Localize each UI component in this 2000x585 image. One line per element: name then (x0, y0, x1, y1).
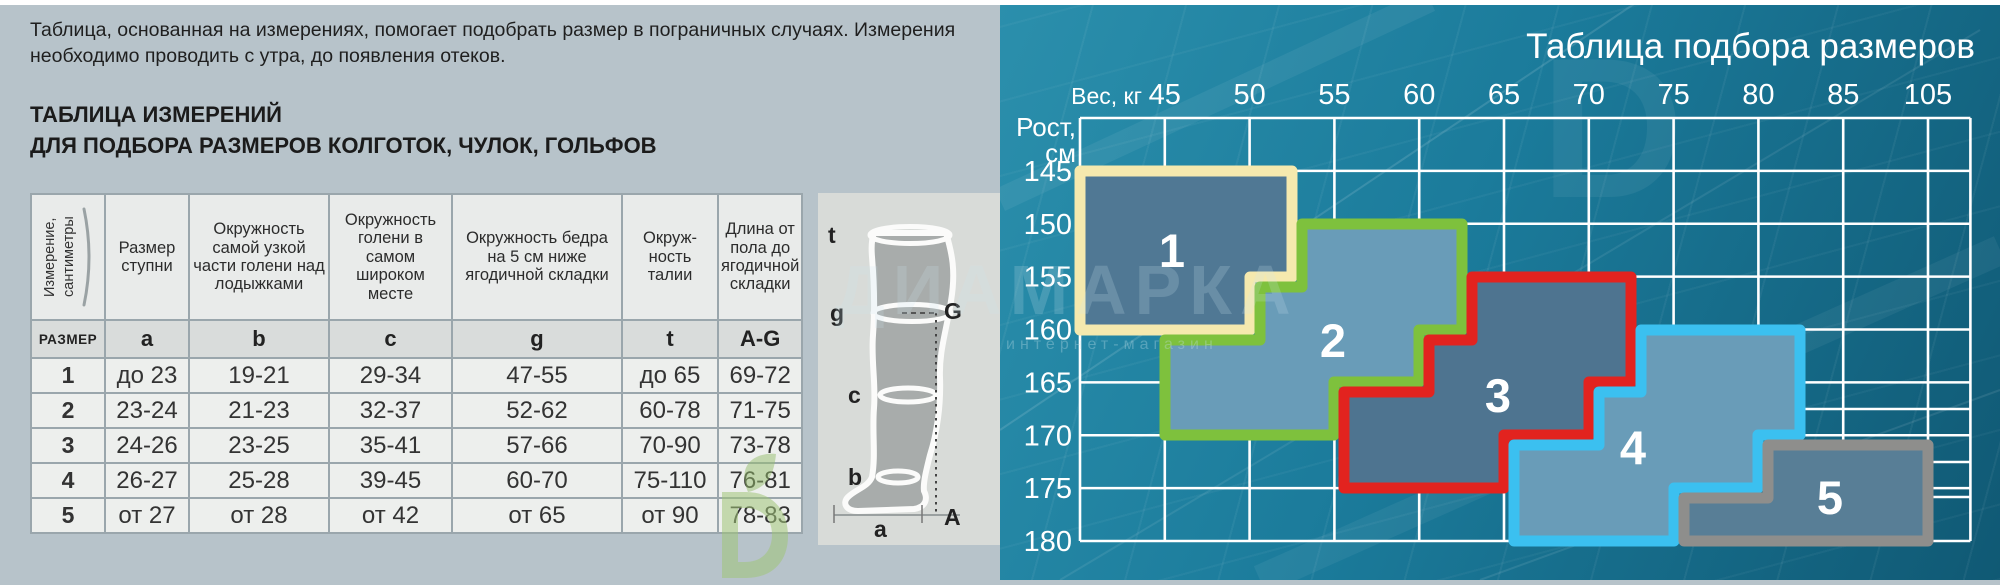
height-tick: 160 (1024, 315, 1072, 347)
cell: 5 (32, 499, 104, 532)
cell: 60-78 (623, 394, 717, 427)
weight-tick: 50 (1233, 79, 1265, 111)
cell: 78-83 (719, 499, 801, 532)
size-selection-panel: 1234545505560657075808510514515015516016… (1000, 0, 2000, 580)
cell: 24-26 (106, 429, 188, 462)
table-heading: ТАБЛИЦА ИЗМЕРЕНИЙ ДЛЯ ПОДБОРА РАЗМЕРОВ К… (30, 99, 657, 161)
cell: 71-75 (719, 394, 801, 427)
cell: от 90 (623, 499, 717, 532)
table-row: 3 24-26 23-25 35-41 57-66 70-90 73-78 (32, 429, 801, 462)
leg-measurement-diagram: t g c b a G A (818, 193, 1000, 545)
height-tick: 165 (1024, 367, 1072, 399)
cell: 32-37 (330, 394, 451, 427)
cell: 19-21 (190, 359, 328, 392)
weight-tick: 60 (1403, 79, 1435, 111)
label-G: G (944, 298, 962, 324)
measurement-table: Измерение, сантиметры Размер ступни Окру… (30, 193, 803, 534)
cell: Измерение, сантиметры (32, 195, 104, 319)
cell: РАЗМЕР (32, 321, 104, 357)
cell: от 28 (190, 499, 328, 532)
cell: 57-66 (453, 429, 621, 462)
cell: t (623, 321, 717, 357)
cell: 47-55 (453, 359, 621, 392)
cell: 25-28 (190, 464, 328, 497)
size-region-number: 1 (1159, 224, 1185, 277)
weight-tick: 45 (1149, 79, 1181, 111)
size-letters-row: РАЗМЕР a b c g t A-G (32, 321, 801, 357)
cell: до 65 (623, 359, 717, 392)
cell: 23-24 (106, 394, 188, 427)
cell: 3 (32, 429, 104, 462)
cell: c (330, 321, 451, 357)
size-region-number: 3 (1485, 369, 1511, 422)
cell: a (106, 321, 188, 357)
cell: от 27 (106, 499, 188, 532)
cell: 4 (32, 464, 104, 497)
cell: Длина от пола до ягодичной складки (719, 195, 801, 319)
height-axis-label-line2: см (1045, 138, 1076, 168)
cell: 29-34 (330, 359, 451, 392)
leg-diagram-panel: t g c b a G A (818, 193, 1000, 545)
size-region-number: 2 (1320, 314, 1346, 367)
table-heading-line1: ТАБЛИЦА ИЗМЕРЕНИЙ (30, 99, 657, 130)
cell: Окружность голени в самом широком месте (330, 195, 451, 319)
cell: Окруж-ность талии (623, 195, 717, 319)
cell: от 65 (453, 499, 621, 532)
label-b: b (848, 464, 862, 490)
label-t: t (828, 222, 836, 248)
table-row: 1 до 23 19-21 29-34 47-55 до 65 69-72 (32, 359, 801, 392)
cell: Окружность самой узкой части голени над … (190, 195, 328, 319)
intro-text: Таблица, основанная на измерениях, помог… (30, 18, 982, 69)
cell: 69-72 (719, 359, 801, 392)
label-a: a (874, 516, 887, 542)
weight-tick: 75 (1657, 79, 1689, 111)
label-c: c (848, 382, 861, 408)
cell: g (453, 321, 621, 357)
weight-tick: 105 (1904, 79, 1952, 111)
cell: 21-23 (190, 394, 328, 427)
cell: 70-90 (623, 429, 717, 462)
label-A: A (944, 504, 961, 530)
cell: 73-78 (719, 429, 801, 462)
rotated-header: Измерение, сантиметры (41, 195, 79, 319)
size-region-number: 5 (1817, 471, 1843, 524)
cell: 35-41 (330, 429, 451, 462)
weight-tick: 85 (1827, 79, 1859, 111)
table-heading-line2: ДЛЯ ПОДБОРА РАЗМЕРОВ КОЛГОТОК, ЧУЛОК, ГО… (30, 130, 657, 161)
height-tick: 155 (1024, 262, 1072, 294)
cell: 1 (32, 359, 104, 392)
cell: до 23 (106, 359, 188, 392)
height-tick: 175 (1024, 473, 1072, 505)
weight-tick: 70 (1573, 79, 1605, 111)
weight-tick: 65 (1488, 79, 1520, 111)
cell: b (190, 321, 328, 357)
size-selection-chart: 1234545505560657075808510514515015516016… (1000, 0, 2000, 580)
size-region-number: 4 (1620, 421, 1646, 474)
cell: 39-45 (330, 464, 451, 497)
weight-tick: 80 (1742, 79, 1774, 111)
table-row: 5 от 27 от 28 от 42 от 65 от 90 78-83 (32, 499, 801, 532)
cell: 76-81 (719, 464, 801, 497)
table-row: 2 23-24 21-23 32-37 52-62 60-78 71-75 (32, 394, 801, 427)
height-tick: 180 (1024, 526, 1072, 558)
cell: A-G (719, 321, 801, 357)
top-white-strip (0, 0, 2000, 5)
cell: 2 (32, 394, 104, 427)
cell: 26-27 (106, 464, 188, 497)
cell: 75-110 (623, 464, 717, 497)
cell: Размер ступни (106, 195, 188, 319)
cell: Окружность бедра на 5 см ниже ягодичной … (453, 195, 621, 319)
cell: 60-70 (453, 464, 621, 497)
cell: 52-62 (453, 394, 621, 427)
table-row: 4 26-27 25-28 39-45 60-70 75-110 76-81 (32, 464, 801, 497)
measurement-panel: Таблица, основанная на измерениях, помог… (0, 0, 1000, 580)
table-header-row: Измерение, сантиметры Размер ступни Окру… (32, 195, 801, 319)
weight-tick: 55 (1318, 79, 1350, 111)
chart-title: Таблица подбора размеров (1526, 27, 1975, 66)
height-tick: 170 (1024, 420, 1072, 452)
weight-axis-label: Вес, кг (1071, 83, 1142, 109)
label-g: g (830, 300, 844, 326)
height-tick: 150 (1024, 209, 1072, 241)
swoosh-icon (81, 205, 95, 309)
cell: от 42 (330, 499, 451, 532)
cell: 23-25 (190, 429, 328, 462)
